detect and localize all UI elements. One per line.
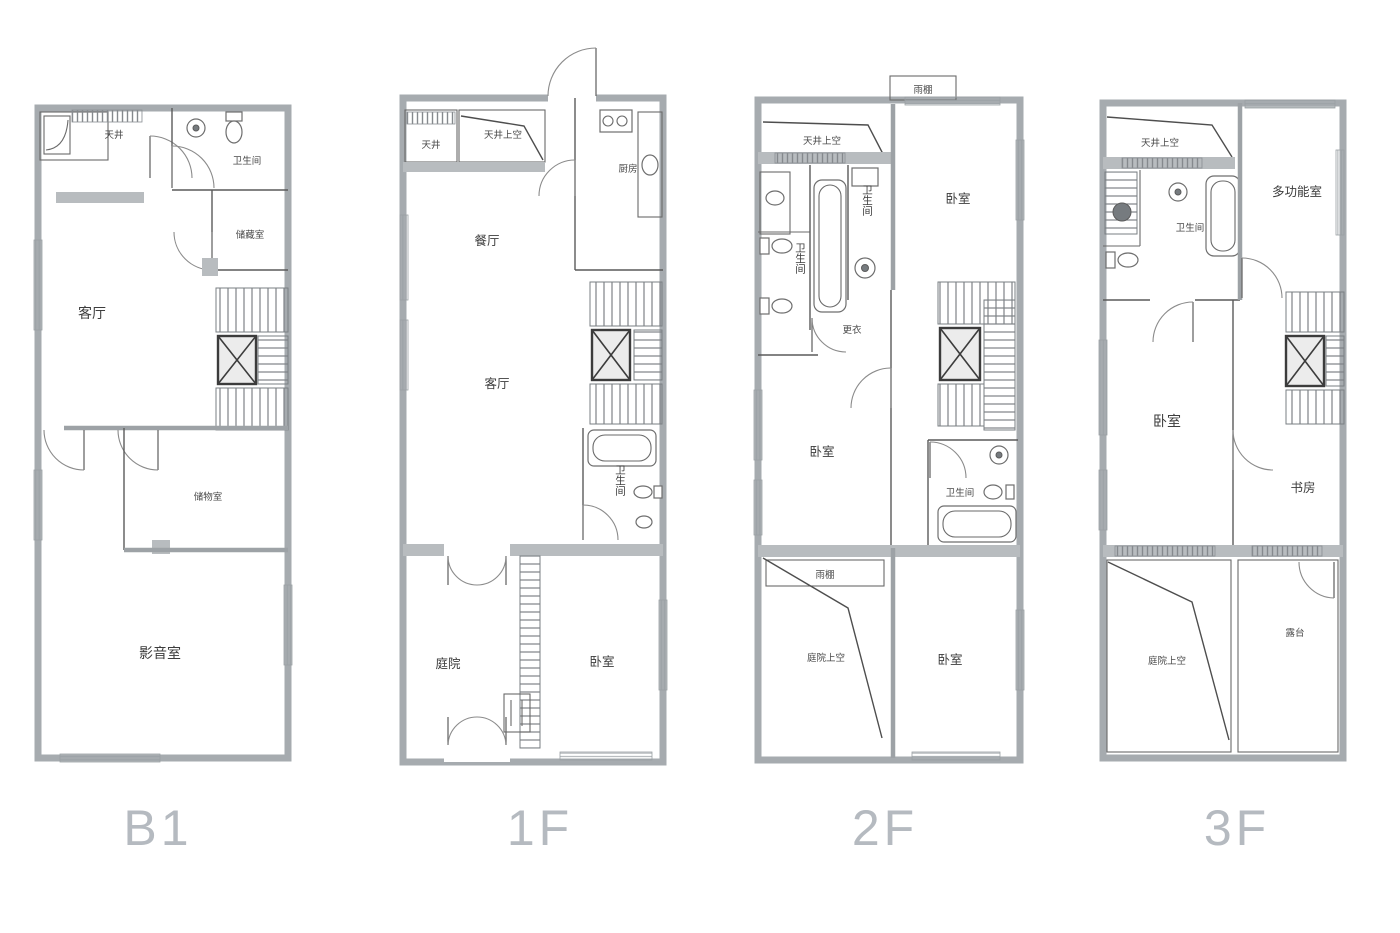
washer-icon (862, 265, 869, 272)
toilet-icon (226, 121, 242, 143)
void-diagonal (1108, 562, 1229, 740)
toilet-icon (984, 485, 1002, 499)
window-strip (60, 754, 160, 762)
louvre-grille-icon (1122, 158, 1202, 168)
door-arc-icon (930, 442, 966, 478)
toilet-icon (760, 238, 769, 254)
double-door-icon (477, 556, 506, 585)
water-heater-icon (44, 116, 70, 154)
room-label-bathroom: 卫生间 (946, 487, 975, 499)
room-label-dressing: 更衣 (842, 324, 862, 336)
room-label-dining: 餐厅 (474, 233, 499, 248)
door-arc-icon (1299, 562, 1334, 598)
door-arc-icon (1242, 258, 1282, 298)
floor-label-b1: B1 (123, 800, 192, 856)
room-label-terrace: 露台 (1285, 627, 1304, 639)
sink-icon (1175, 189, 1181, 195)
room-label-canopy: 雨棚 (815, 569, 834, 581)
double-door-icon (448, 717, 477, 745)
room-label-bathroom: 卫生间 (794, 242, 806, 274)
window-strip (1336, 150, 1344, 235)
sink-icon (1113, 203, 1131, 221)
louvre-grille-icon (407, 112, 455, 124)
door-opening (444, 542, 510, 558)
window-strip (284, 585, 292, 665)
elevator-icon (1286, 336, 1324, 386)
floor-plan-1f: 天井 天井上空 厨房 餐厅 客厅 (400, 48, 667, 762)
wall-block (202, 258, 218, 276)
floor-plan-3f: 天井上空 卫生间 多功能室 卧室 书房 (1099, 100, 1344, 758)
window-strip (1016, 140, 1024, 220)
toilet-icon (226, 112, 242, 121)
water-heater-icon (46, 120, 68, 150)
toilet-icon (772, 239, 792, 253)
partition-wall (758, 545, 1020, 557)
elevator-icon (592, 330, 630, 380)
room-label-lightwell-void: 天井上空 (1141, 137, 1179, 149)
room-label-courtyard-void: 庭院上空 (1148, 655, 1186, 667)
entrance-opening (548, 90, 596, 106)
partition-wall (403, 544, 663, 556)
louvre-grille-icon (1115, 546, 1215, 556)
louvre-grille-icon (72, 110, 142, 122)
floor-plan-2f: 雨棚 天井上空 卫生间 卫生间 更衣 卧室 (754, 76, 1024, 760)
floor-label-3f: 3F (1204, 800, 1270, 856)
entry-door-icon (548, 48, 596, 96)
sink-icon (766, 191, 784, 205)
door-arc-icon (150, 136, 192, 178)
floor-label-2f: 2F (852, 800, 918, 856)
toilet-icon (654, 486, 662, 498)
room-label-bedroom: 卧室 (937, 652, 962, 667)
outer-wall (758, 100, 1020, 760)
room-label-bathroom: 卫生间 (614, 464, 626, 496)
door-opening (444, 748, 510, 762)
window-strip (400, 320, 408, 390)
door-arc-icon (1153, 302, 1193, 342)
elevator-icon (218, 336, 256, 384)
room-label-bedroom: 卧室 (589, 654, 614, 669)
window-sill (56, 192, 144, 203)
window-strip (34, 470, 42, 540)
window-strip (34, 240, 42, 330)
room-label-bathroom: 卫生间 (233, 155, 262, 167)
window-strip (754, 390, 762, 460)
door-arc-icon (851, 368, 891, 408)
room-label-bedroom: 卧室 (945, 191, 970, 206)
floor-label-1f: 1F (507, 800, 573, 856)
room-label-canopy: 雨棚 (913, 84, 932, 96)
window-strip (1245, 100, 1335, 108)
terrace-area (1238, 560, 1338, 752)
double-door-icon (448, 556, 477, 585)
room-label-storage: 储藏室 (236, 229, 265, 241)
sink-icon (642, 155, 658, 175)
window-sill (403, 162, 545, 172)
window-strip (905, 97, 1000, 105)
room-label-bedroom: 卧室 (809, 444, 834, 459)
room-label-living: 客厅 (78, 305, 106, 322)
window-strip (1099, 470, 1107, 530)
door-arc-icon (812, 318, 846, 352)
room-label-kitchen: 厨房 (618, 163, 637, 175)
room-label-lightwell: 天井 (421, 139, 440, 151)
toilet-icon (634, 486, 652, 498)
room-label-lightwell-void: 天井上空 (803, 135, 841, 147)
louvre-grille-icon (775, 153, 845, 163)
toilet-icon (1118, 253, 1138, 267)
window-strip (1016, 610, 1024, 690)
void-diagonal (1107, 117, 1232, 157)
elevator-icon (940, 328, 980, 380)
window-strip (912, 752, 1000, 760)
floor-plan-b1: 天井 卫生间 储藏室 客厅 (34, 108, 292, 762)
room-label-storage: 储物室 (194, 491, 223, 503)
room-label-media-room: 影音室 (139, 645, 181, 662)
room-label-lightwell: 天井 (104, 129, 123, 141)
room-label-courtyard-void: 庭院上空 (807, 652, 845, 664)
door-arc-icon (583, 505, 618, 540)
toilet-icon (1106, 252, 1115, 268)
room-label-study: 书房 (1290, 480, 1315, 495)
toilet-icon (772, 299, 792, 313)
door-arc-icon (172, 146, 214, 188)
double-door-icon (477, 717, 506, 745)
window-strip (659, 600, 667, 690)
window-strip (560, 752, 652, 760)
sink-icon (996, 452, 1002, 458)
floor-plan-sheet: 天井 卫生间 储藏室 客厅 (0, 0, 1400, 933)
floor-plan-canvas: 天井 卫生间 储藏室 客厅 (0, 0, 1400, 933)
window-strip (754, 480, 762, 535)
window-strip (1099, 340, 1107, 435)
door-arc-icon (44, 430, 84, 470)
toilet-icon (1006, 485, 1014, 499)
room-label-bathroom: 卫生间 (1176, 222, 1205, 234)
room-label-living: 客厅 (484, 376, 509, 391)
room-label-multipurpose: 多功能室 (1272, 184, 1322, 199)
room-label-bedroom: 卧室 (1153, 413, 1181, 430)
sink-icon (636, 516, 652, 528)
room-label-lightwell-void: 天井上空 (484, 129, 522, 141)
door-arc-icon (1233, 430, 1273, 470)
room-label-courtyard: 庭院 (435, 656, 461, 671)
room-label-bathroom: 卫生间 (861, 184, 873, 216)
louvre-grille-icon (1252, 546, 1322, 556)
toilet-icon (760, 298, 769, 314)
void-diagonal (763, 558, 882, 738)
window-strip (400, 215, 408, 300)
sink-icon (193, 125, 199, 131)
